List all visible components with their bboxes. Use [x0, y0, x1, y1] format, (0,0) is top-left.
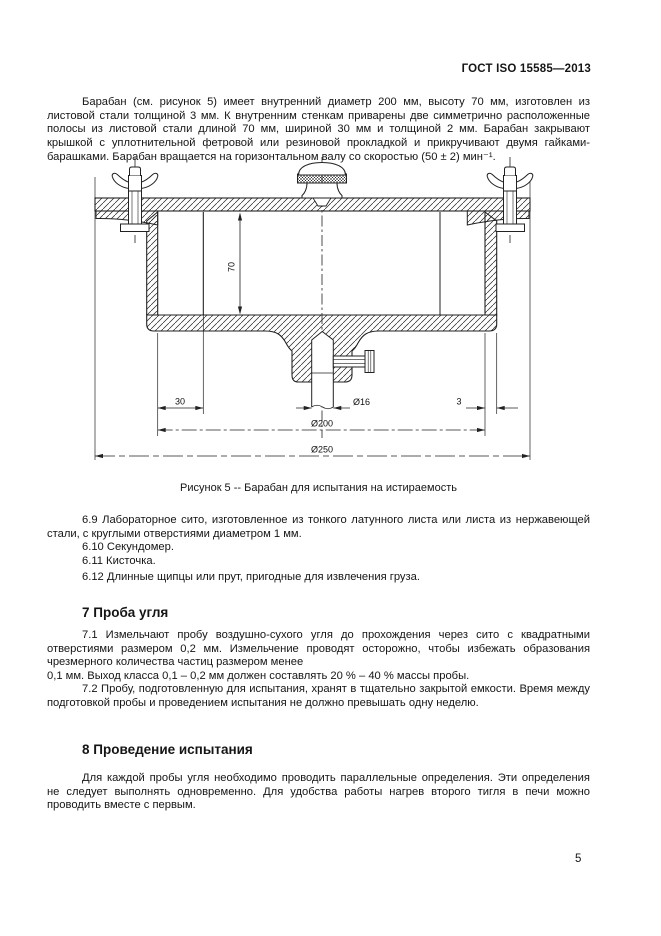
dim-strip-width: 30	[158, 397, 204, 411]
item-6-9: 6.9 Лабораторное сито, изготовленное из …	[47, 514, 590, 541]
section-8-paragraph: Для каждой пробы угля необходимо проводи…	[47, 772, 590, 813]
equipment-list: 6.9 Лабораторное сито, изготовленное из …	[47, 514, 590, 585]
section-7-body: 7.1 Измельчают пробу воздушно-сухого угл…	[47, 629, 590, 711]
paragraph-7-2: 7.2 Пробу, подготовленную для испытания,…	[47, 683, 590, 710]
item-6-11: 6.11 Кисточка.	[47, 555, 590, 569]
svg-text:3: 3	[456, 397, 461, 407]
section-7-heading: 7 Проба угля	[82, 605, 168, 620]
svg-text:Ø200: Ø200	[311, 419, 333, 429]
intro-paragraph: Барабан (см. рисунок 5) имеет внутренний…	[47, 96, 590, 164]
section-8-heading: 8 Проведение испытания	[82, 742, 253, 757]
svg-text:70: 70	[227, 262, 237, 272]
dim-outer-diameter: Ø250	[95, 445, 530, 459]
paragraph-7-1: 7.1 Измельчают пробу воздушно-сухого угл…	[47, 629, 590, 670]
dim-inner-diameter: Ø200	[158, 419, 485, 433]
page-number: 5	[575, 853, 581, 865]
document-page: ГОСТ ISO 15585—2013 Барабан (см. рисунок…	[0, 0, 661, 936]
drum-lid	[95, 198, 530, 211]
dim-inner-height: 70	[227, 213, 243, 315]
svg-text:Ø16: Ø16	[353, 397, 370, 407]
page-header: ГОСТ ISO 15585—2013	[462, 63, 591, 75]
paragraph-7-1-cont: 0,1 мм. Выход класса 0,1 – 0,2 мм должен…	[47, 670, 590, 684]
item-6-10: 6.10 Секундомер.	[47, 541, 590, 555]
figure-drum-drawing: 70 30 Ø16 3 Ø200	[85, 155, 575, 475]
drum-wall-right	[485, 212, 497, 315]
svg-text:Ø250: Ø250	[311, 445, 333, 455]
flange-right	[467, 211, 529, 225]
item-6-12: 6.12 Длинные щипцы или прут, пригодные д…	[47, 571, 590, 585]
shaft-bore	[312, 332, 334, 409]
svg-text:30: 30	[175, 397, 185, 407]
figure-caption: Рисунок 5 -- Барабан для испытания на ис…	[47, 482, 590, 494]
dim-wall-thickness: 3	[456, 397, 518, 411]
